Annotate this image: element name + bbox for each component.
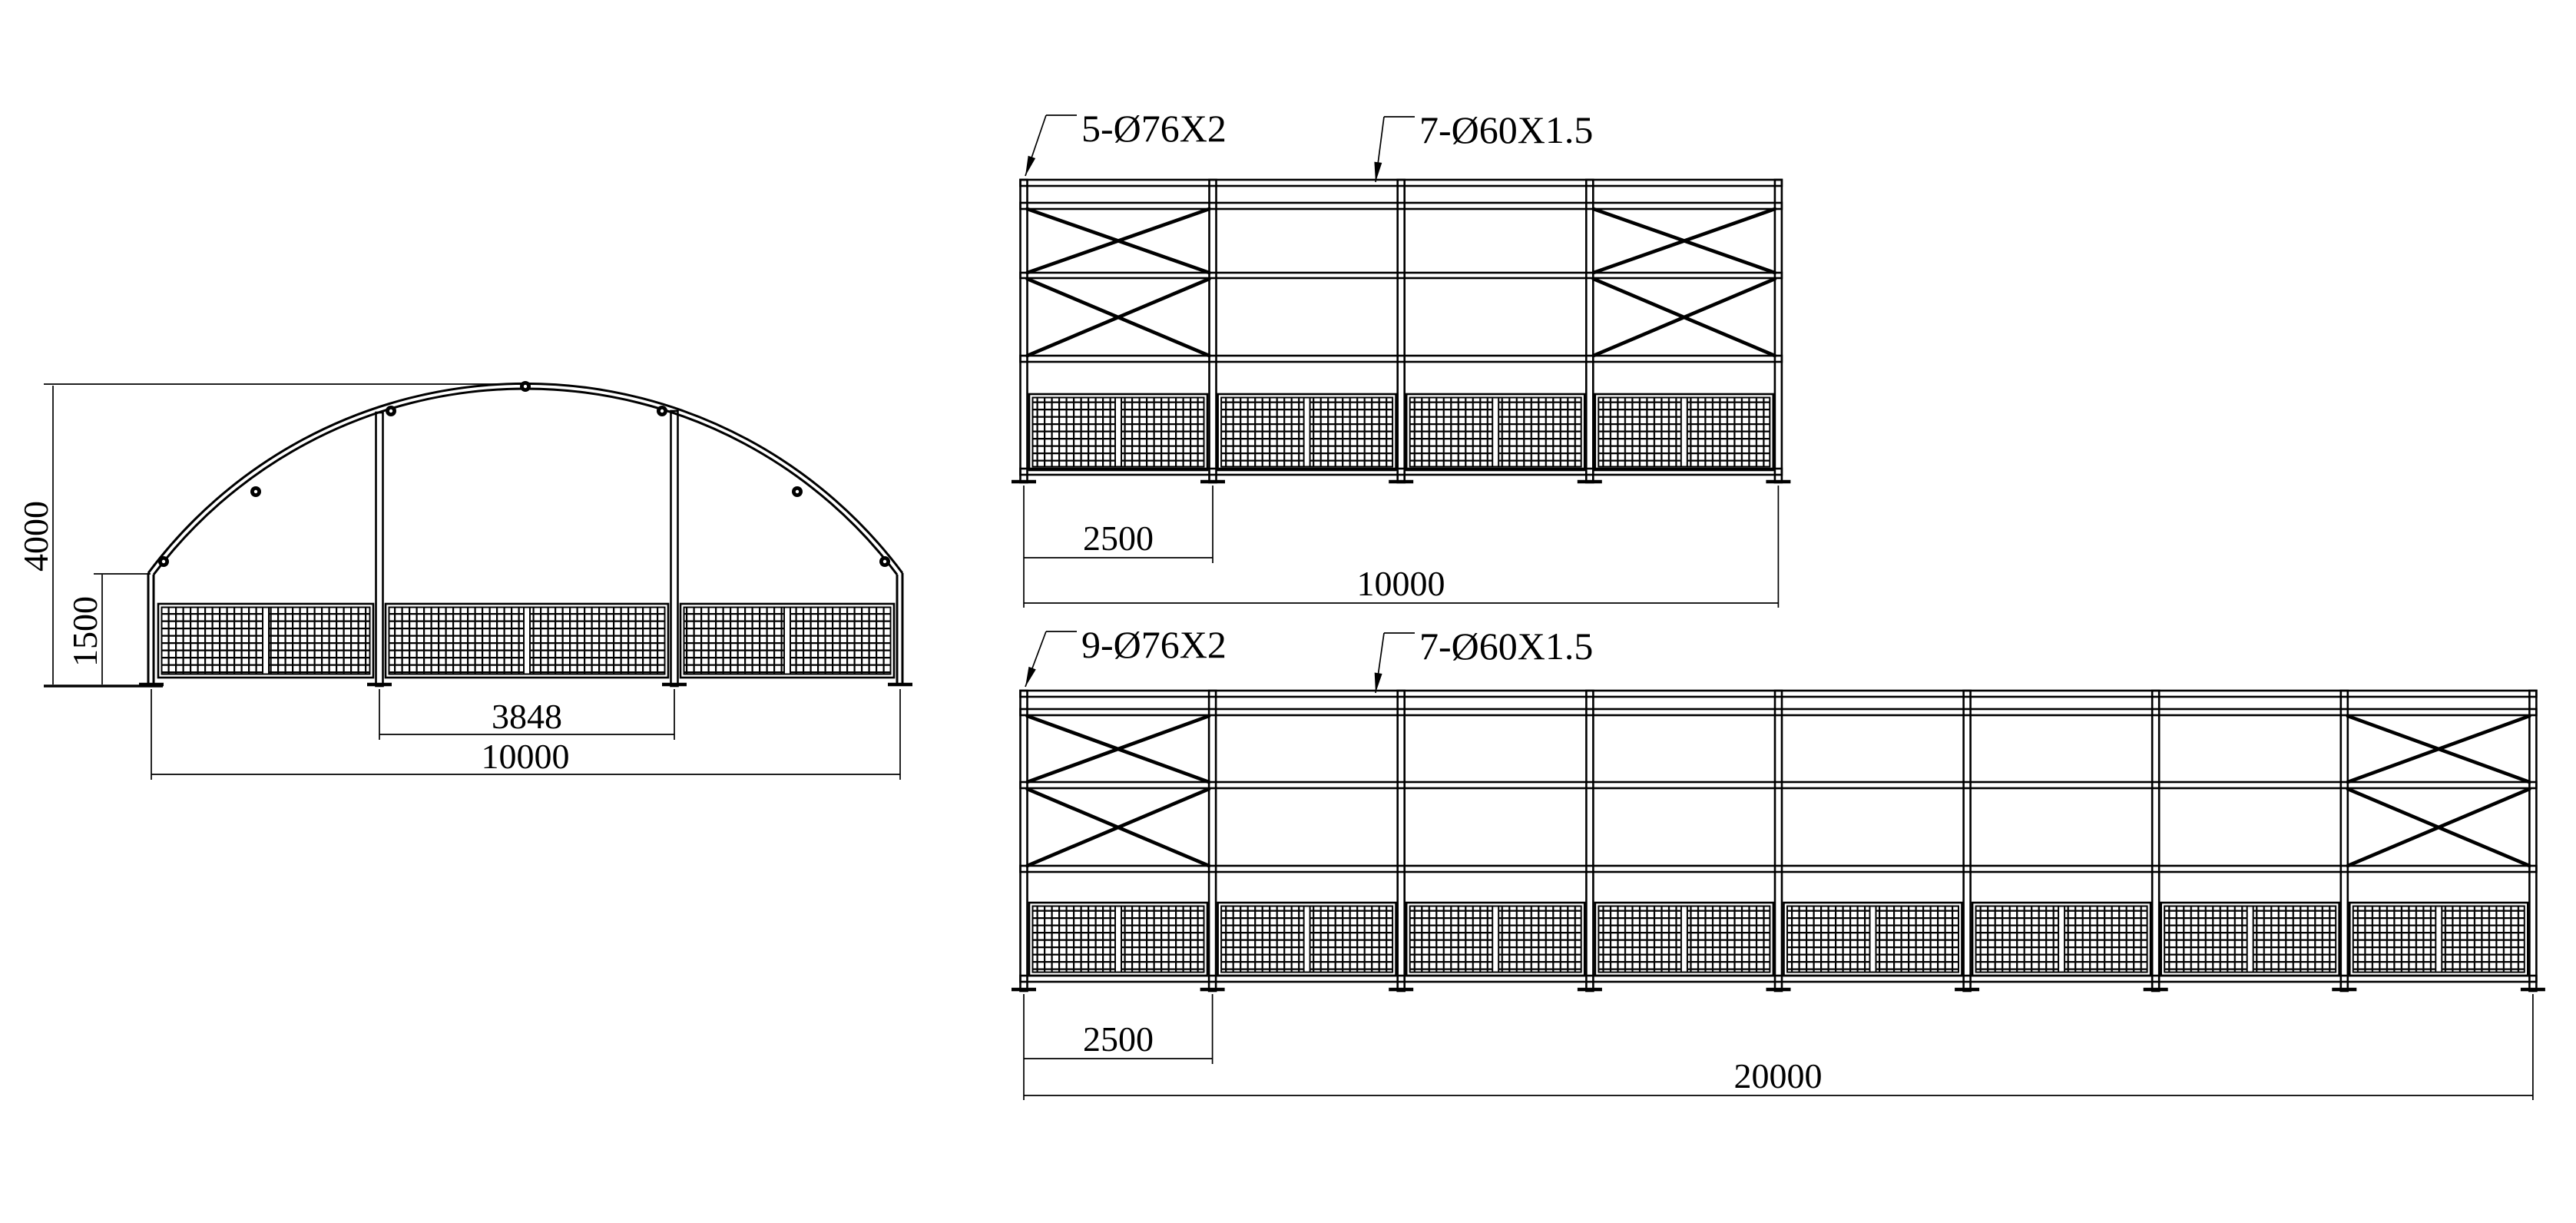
label-columns-10m: 5-Ø76X2 [1081, 107, 1227, 150]
label-columns-20m: 9-Ø76X2 [1081, 623, 1227, 666]
front-mesh-panel-3 [680, 604, 894, 678]
mesh-panel [2349, 903, 2528, 976]
mesh-panel [1595, 394, 1773, 470]
front-mesh-panel-2 [386, 604, 668, 678]
mesh-panel [1029, 903, 1207, 976]
mesh-panel [1406, 903, 1584, 976]
dim-text-2500-20m: 2500 [1083, 1019, 1154, 1059]
dim-text-3848: 3848 [492, 697, 562, 736]
dim-text-1500: 1500 [65, 596, 104, 667]
dim-text-10000-side: 10000 [1357, 564, 1445, 603]
front-mesh-panel-1 [158, 604, 373, 678]
mesh-panel [1784, 903, 1962, 976]
mesh-panel [1595, 903, 1773, 976]
dim-text-10000: 10000 [482, 737, 570, 776]
dim-text-20000: 20000 [1734, 1056, 1823, 1095]
dim-text-2500: 2500 [1083, 519, 1154, 558]
technical-drawing: 4000 1500 3848 10000 [0, 0, 2576, 1223]
dim-text-4000: 4000 [16, 501, 55, 572]
label-purlins-10m: 7-Ø60X1.5 [1419, 108, 1593, 151]
mesh-panel [1218, 394, 1396, 470]
mesh-panel [1029, 394, 1207, 470]
mesh-panel [1406, 394, 1584, 470]
mesh-panel [1972, 903, 2151, 976]
label-purlins-20m: 7-Ø60X1.5 [1419, 625, 1593, 668]
mesh-panel [1218, 903, 1396, 976]
mesh-panel [2161, 903, 2339, 976]
